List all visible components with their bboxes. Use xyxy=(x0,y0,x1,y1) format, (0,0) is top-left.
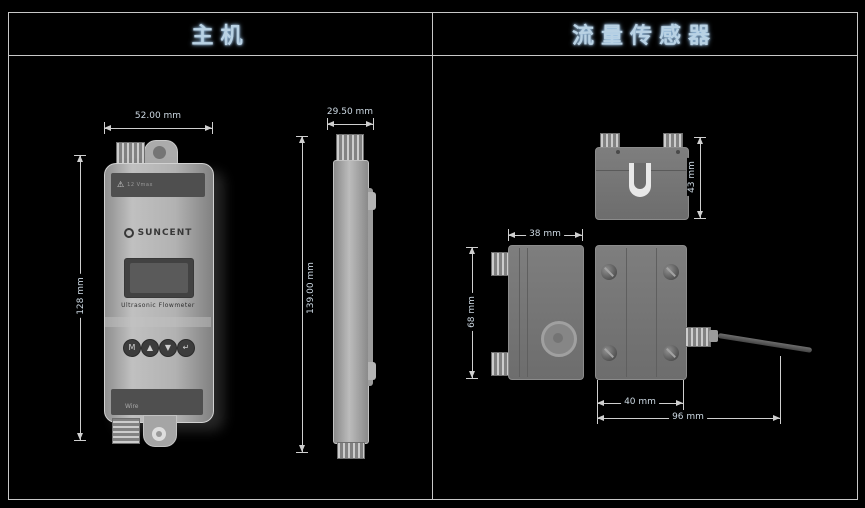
dim-line-top-depth xyxy=(700,137,701,218)
screw-icon xyxy=(601,345,617,361)
dim-side-height-label: 68 mm xyxy=(467,293,477,331)
dim-body-height-label: 128 mm xyxy=(76,274,86,318)
cable-connector xyxy=(685,327,711,347)
arrow-right-icon xyxy=(676,400,683,406)
arrow-right-icon xyxy=(575,232,582,238)
ext-tick xyxy=(683,380,684,410)
dim-total-height-label: 139.00 mm xyxy=(306,259,316,317)
lcd-screen xyxy=(130,263,188,293)
ext-tick xyxy=(780,356,781,424)
top-cable-connector xyxy=(116,142,145,165)
arrow-up-icon xyxy=(77,155,83,162)
ext-tick xyxy=(212,122,213,134)
screw-icon xyxy=(663,345,679,361)
arrow-up-icon xyxy=(469,247,475,254)
warning-icon: ⚠ xyxy=(117,181,124,189)
arrow-down-icon xyxy=(469,371,475,378)
screw-icon xyxy=(601,264,617,280)
arrow-up-icon xyxy=(697,137,703,144)
warning-label: 12 Vmax xyxy=(127,182,153,188)
ext-tick xyxy=(694,218,706,219)
arrow-down-icon xyxy=(299,445,305,452)
screenshot-root: 主机 流量传感器 ⚠ 12 Vmax SUNCENT Ultrasonic Fl… xyxy=(0,0,865,508)
seam-line xyxy=(527,248,528,377)
arrow-up-icon xyxy=(299,136,305,143)
arrow-left-icon xyxy=(327,121,334,127)
arrow-left-icon xyxy=(104,125,111,131)
side-bottom-foot xyxy=(337,442,365,459)
arrow-down-icon xyxy=(697,211,703,218)
screw-icon xyxy=(663,264,679,280)
side-clip-strip xyxy=(368,188,373,386)
ext-tick xyxy=(373,118,374,130)
right-panel-title: 流量传感器 xyxy=(433,13,856,55)
seam-line xyxy=(519,248,520,377)
header-underline xyxy=(8,55,857,56)
panel-seam xyxy=(105,317,211,327)
bottom-cable-connector xyxy=(112,418,140,444)
dim-overall-width-label: 96 mm xyxy=(669,412,707,422)
brand-row: SUNCENT xyxy=(104,228,212,238)
top-ear-hole xyxy=(153,146,166,159)
ext-tick xyxy=(466,378,478,379)
warning-band: ⚠ 12 Vmax xyxy=(111,173,205,197)
dim-top-depth-label: 43 mm xyxy=(687,158,697,196)
arrow-left-icon xyxy=(508,232,515,238)
bottom-ear-hole-center xyxy=(156,431,162,437)
port-band: Wire ▼ xyxy=(111,389,203,415)
panel-divider xyxy=(432,12,433,499)
ext-tick xyxy=(74,440,86,441)
sensor-top-dot xyxy=(676,150,680,154)
menu-button: M xyxy=(123,339,141,357)
arrow-right-icon xyxy=(773,415,780,421)
dim-line-width xyxy=(104,128,212,129)
down-button: ▼ xyxy=(159,339,177,357)
transducer-lens xyxy=(541,321,577,357)
arrow-left-icon xyxy=(597,415,604,421)
brand-name: SUNCENT xyxy=(138,228,193,238)
arrow-down-icon xyxy=(77,433,83,440)
side-clip-top xyxy=(368,192,376,210)
lcd-display xyxy=(124,258,194,298)
dim-bottom-width-label: 40 mm xyxy=(621,397,659,407)
side-profile-body xyxy=(333,160,369,444)
side-top-connector xyxy=(336,134,364,163)
left-panel-title: 主机 xyxy=(9,13,432,55)
seam-line xyxy=(626,248,627,377)
ext-tick xyxy=(296,452,308,453)
arrow-right-icon xyxy=(205,125,212,131)
ext-tick xyxy=(582,229,583,241)
arrow-left-icon xyxy=(597,400,604,406)
dim-line-total-height xyxy=(302,136,303,452)
dim-depth-label: 29.50 mm xyxy=(324,107,376,117)
up-button: ▲ xyxy=(141,339,159,357)
cable-nut xyxy=(709,330,718,342)
brand-logo-icon xyxy=(124,228,134,238)
dim-side-width-label: 38 mm xyxy=(526,229,564,239)
sensor-top-dot xyxy=(616,150,620,154)
arrow-right-icon xyxy=(366,121,373,127)
sensor-side-body xyxy=(508,245,584,380)
enter-button: ↵ xyxy=(177,339,195,357)
port-label: Wire xyxy=(125,403,139,410)
sensor-u-slot-inner xyxy=(634,163,646,189)
side-clip-bottom xyxy=(368,362,376,380)
product-subtitle: Ultrasonic Flowmeter xyxy=(104,302,212,309)
seam-line xyxy=(656,248,657,377)
dim-width-label: 52.00 mm xyxy=(132,111,184,121)
